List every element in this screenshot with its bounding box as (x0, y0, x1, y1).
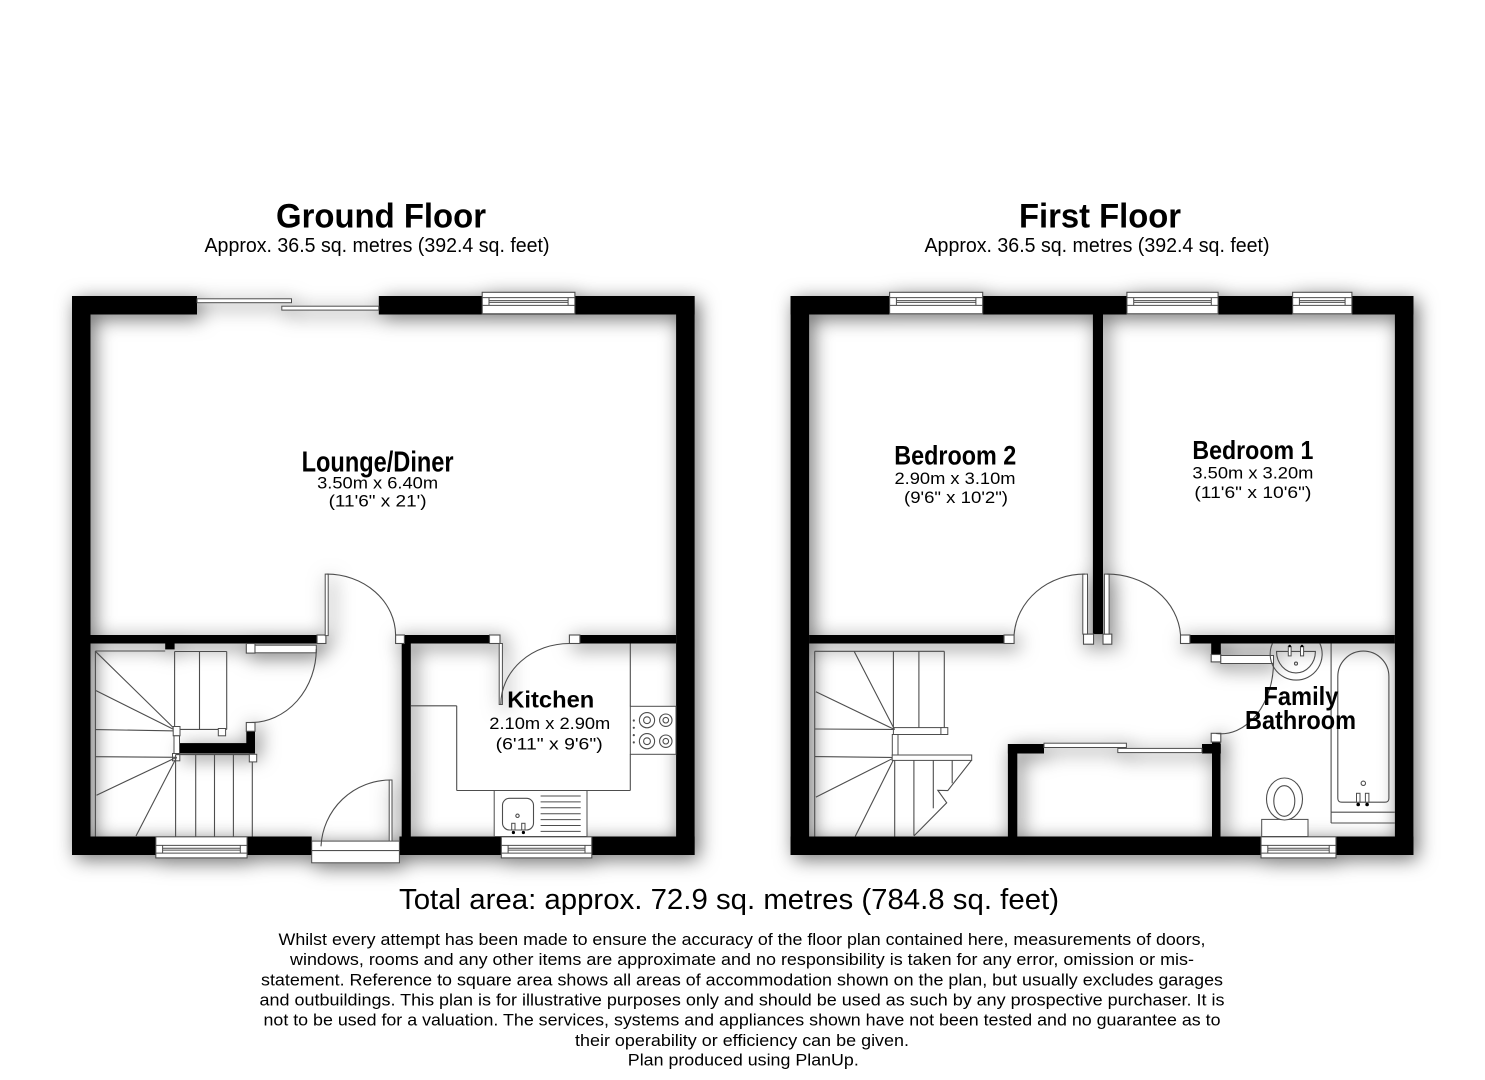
svg-text:Approx. 36.5 sq. metres (392.4: Approx. 36.5 sq. metres (392.4 sq. feet) (205, 235, 550, 257)
svg-text:(9'6" x 10'2"): (9'6" x 10'2") (904, 489, 1008, 507)
svg-text:(11'6" x 10'6"): (11'6" x 10'6") (1194, 484, 1311, 502)
svg-text:and outbuildings. This plan is: and outbuildings. This plan is for illus… (260, 992, 1225, 1010)
svg-text:windows, rooms and any other i: windows, rooms and any other items are a… (289, 951, 1194, 969)
svg-text:First Floor: First Floor (1019, 198, 1181, 236)
svg-text:Bedroom 1: Bedroom 1 (1192, 435, 1313, 465)
svg-text:2.10m x 2.90m: 2.10m x 2.90m (489, 715, 610, 733)
svg-text:Bedroom 2: Bedroom 2 (894, 441, 1016, 471)
svg-text:3.50m x 6.40m: 3.50m x 6.40m (317, 475, 438, 493)
svg-text:(11'6" x 21'): (11'6" x 21') (329, 492, 427, 510)
svg-text:3.50m x 3.20m: 3.50m x 3.20m (1192, 465, 1313, 483)
svg-text:Ground Floor: Ground Floor (276, 198, 486, 236)
svg-text:not to be used for a valuation: not to be used for a valuation. The serv… (264, 1012, 1221, 1030)
svg-text:2.90m x 3.10m: 2.90m x 3.10m (895, 470, 1016, 488)
svg-text:Approx. 36.5 sq. metres (392.4: Approx. 36.5 sq. metres (392.4 sq. feet) (925, 235, 1270, 257)
svg-text:Total area: approx. 72.9 sq. m: Total area: approx. 72.9 sq. metres (784… (399, 884, 1059, 916)
svg-text:their operability or efficienc: their operability or efficiency can be g… (575, 1032, 909, 1050)
svg-text:Whilst every attempt has been: Whilst every attempt has been made to en… (279, 931, 1206, 949)
svg-text:Plan produced using PlanUp.: Plan produced using PlanUp. (628, 1052, 859, 1070)
svg-text:Kitchen: Kitchen (507, 687, 594, 713)
svg-text:statement. Reference to square: statement. Reference to square area show… (261, 971, 1223, 989)
svg-text:(6'11" x 9'6"): (6'11" x 9'6") (496, 736, 603, 754)
svg-text:Bathroom: Bathroom (1245, 705, 1356, 735)
